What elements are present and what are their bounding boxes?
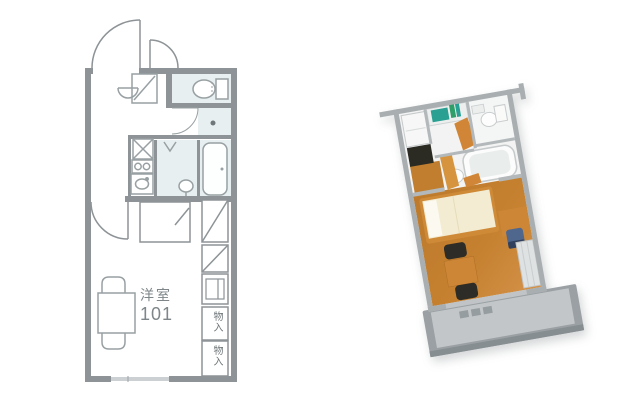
floorplan-3d (355, 70, 605, 380)
window-box (202, 274, 228, 304)
kitchen-stove-icon (132, 160, 153, 173)
bathtub-icon (203, 143, 227, 195)
floorplan-figure: 洋室 101 物入 物入 (0, 0, 640, 419)
table-icon (98, 293, 135, 333)
kitchen-sink-icon (131, 174, 153, 194)
loft-ladder (202, 200, 228, 242)
storage-label-top: 物入 (209, 311, 224, 333)
room-door-arc (91, 202, 128, 239)
room-entry-box (140, 202, 190, 242)
toilet-3d (469, 95, 515, 144)
balcony-window (111, 376, 169, 382)
storage-label-bottom: 物入 (209, 345, 224, 367)
room-name: 洋室 (140, 288, 173, 304)
refrigerator-space (133, 139, 153, 159)
toilet-icon (193, 79, 228, 99)
unit-3d (379, 80, 585, 359)
entrance-opening (93, 68, 139, 74)
room-number: 101 (140, 304, 173, 324)
shelf-box (202, 245, 228, 272)
entrance-door-arc (92, 20, 178, 68)
room-label: 洋室 101 (140, 288, 173, 324)
